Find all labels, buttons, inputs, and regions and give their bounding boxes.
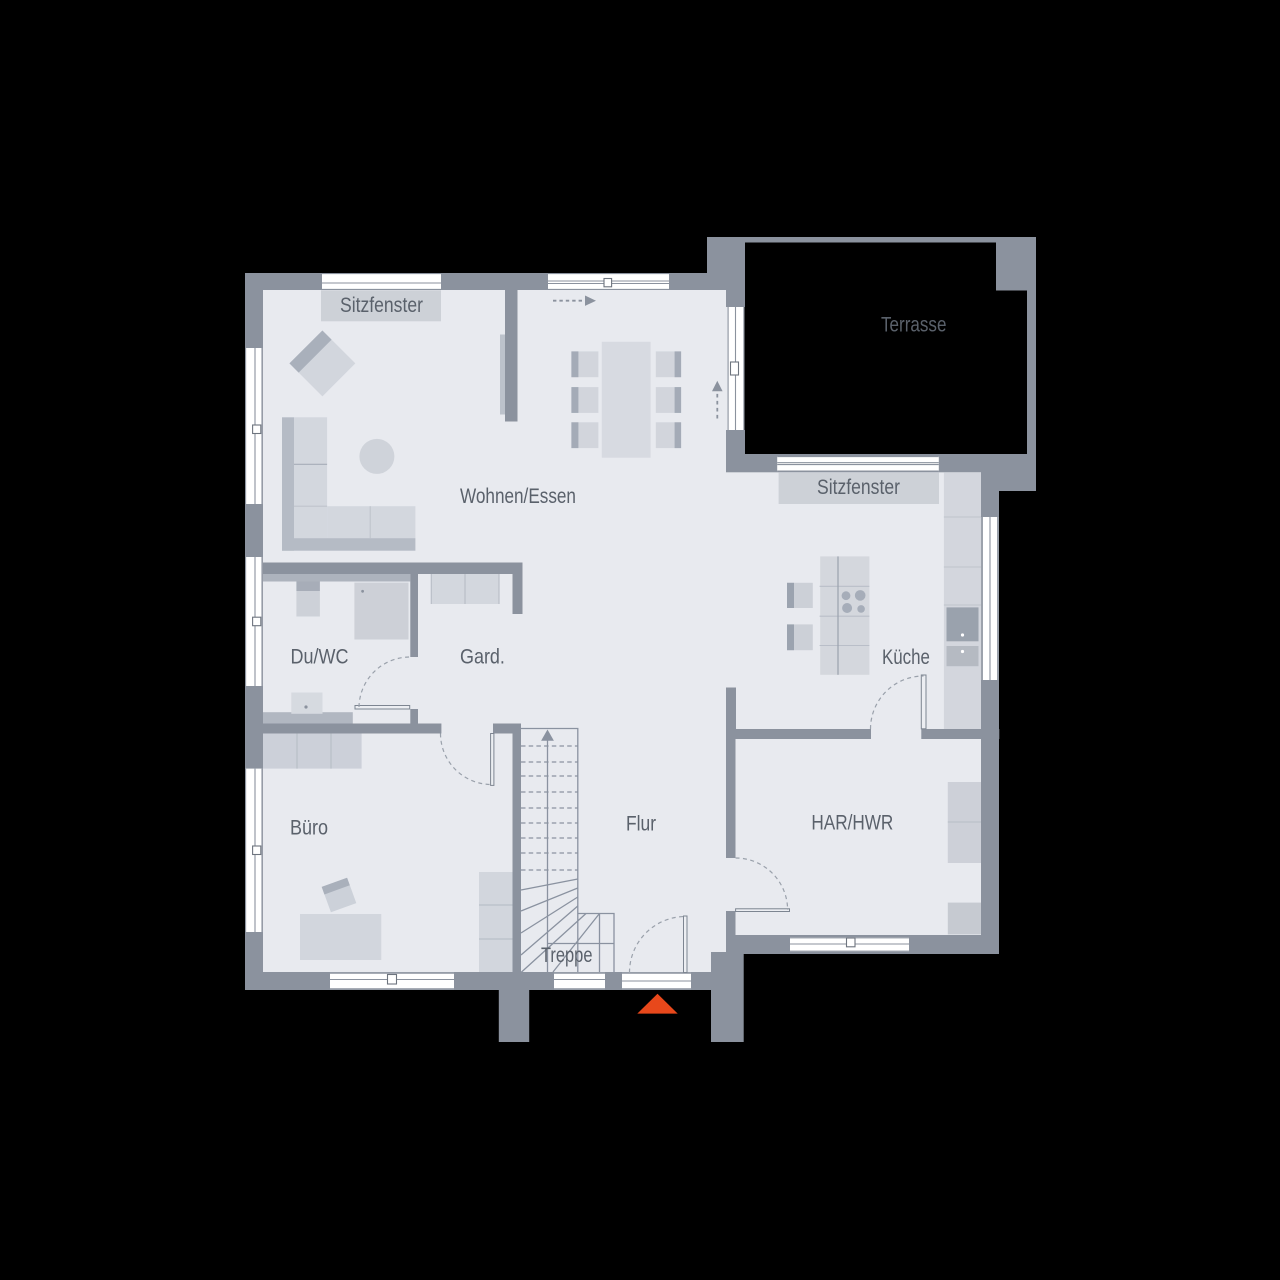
svg-text:Wohnen/Essen: Wohnen/Essen — [460, 484, 576, 508]
svg-text:Terrasse: Terrasse — [881, 313, 946, 337]
svg-text:Flur: Flur — [626, 812, 656, 836]
svg-text:Du/WC: Du/WC — [291, 645, 349, 669]
svg-text:Sitzfenster: Sitzfenster — [340, 293, 423, 317]
svg-text:Treppe: Treppe — [541, 944, 592, 968]
svg-text:Büro: Büro — [290, 816, 328, 840]
svg-text:Sitzfenster: Sitzfenster — [817, 475, 900, 499]
svg-text:Gard.: Gard. — [460, 645, 505, 669]
svg-text:Küche: Küche — [882, 645, 930, 669]
svg-text:HAR/HWR: HAR/HWR — [811, 811, 893, 835]
